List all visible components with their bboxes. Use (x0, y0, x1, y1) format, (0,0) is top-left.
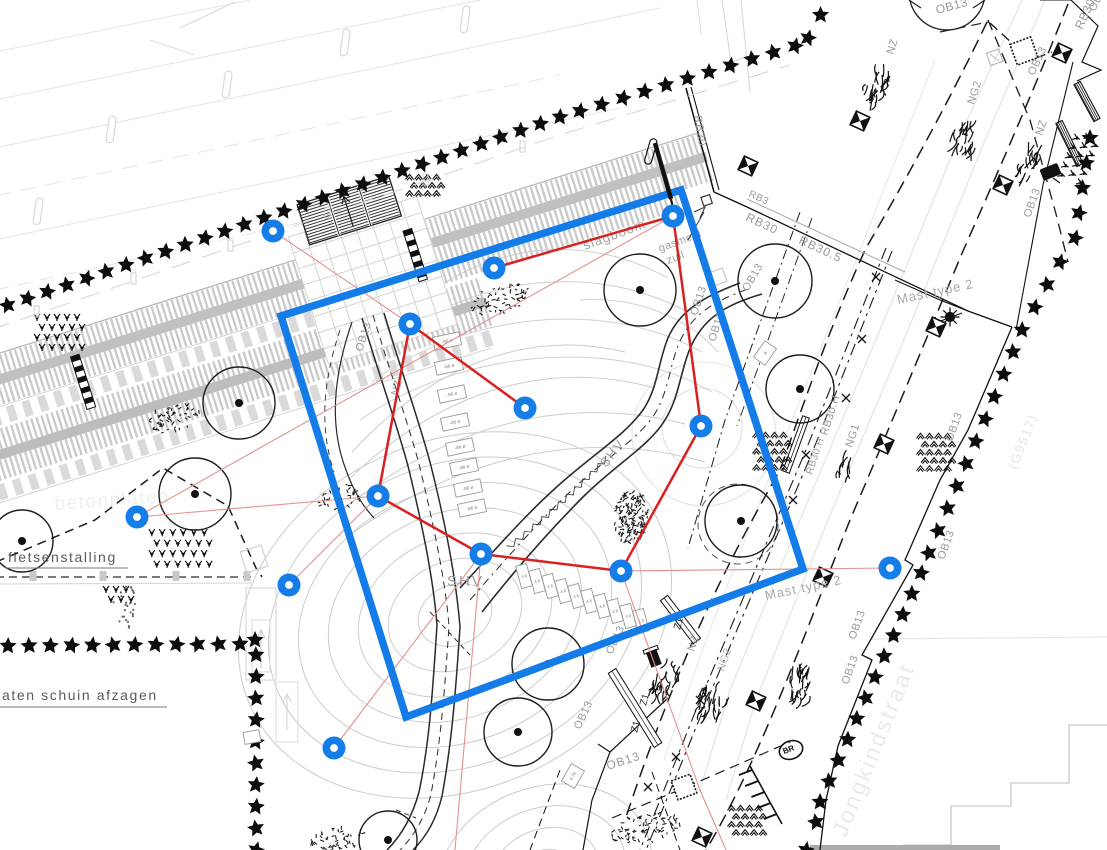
svg-text:aten schuin afzagen: aten schuin afzagen (2, 687, 158, 703)
svg-text:fietsenstalling: fietsenstalling (8, 549, 117, 565)
